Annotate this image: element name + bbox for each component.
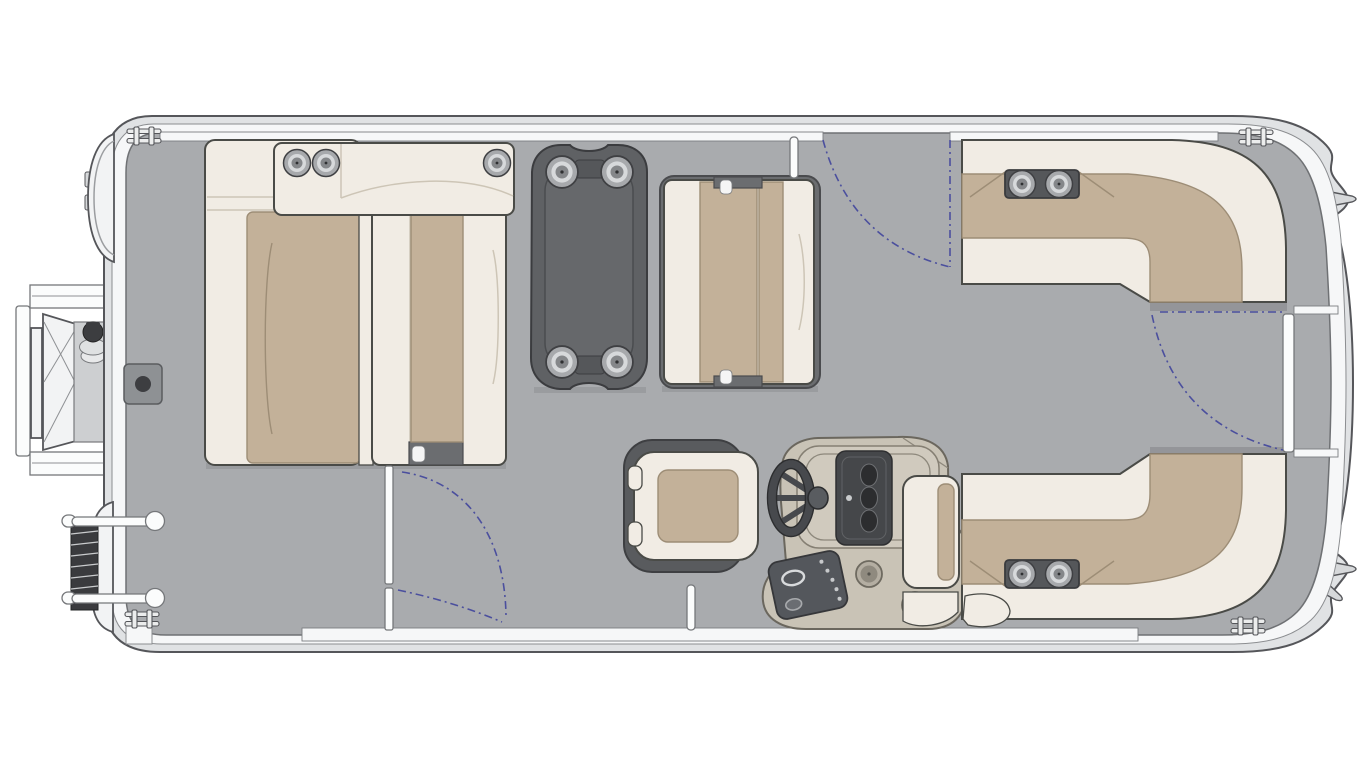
- outboard-motor: [85, 134, 114, 262]
- bow-corner-lounge-top: [962, 140, 1286, 302]
- side-gate-partition: [385, 466, 393, 584]
- forward-bench: [372, 188, 506, 465]
- cupholder-icon: [1009, 171, 1036, 198]
- companion-seat: [903, 476, 959, 626]
- bottom-rail: [302, 628, 1138, 641]
- chaise-cushion: [247, 212, 361, 463]
- bow-armrest-console: [274, 143, 514, 215]
- bench-cushion: [411, 211, 463, 442]
- instrument-cluster: [836, 451, 892, 545]
- rail-post: [687, 585, 695, 630]
- rail-post: [790, 137, 798, 178]
- wheel-hub-icon: [808, 487, 828, 509]
- seat-divider: [359, 190, 373, 465]
- cupholder-icon: [284, 150, 311, 177]
- cupholder-icon: [601, 156, 633, 188]
- stern-door-open: [16, 285, 114, 475]
- chair-cushion: [658, 470, 738, 542]
- gauge-icon: [861, 464, 878, 486]
- pedestal-table: [531, 145, 647, 389]
- bow-walkway-strip-bottom: [1294, 449, 1338, 457]
- console-cupholder-icon: [856, 561, 882, 587]
- captain-chair: [624, 440, 758, 572]
- cupholder-icon: [546, 156, 578, 188]
- cupholder-icon: [601, 346, 633, 378]
- gauge-icon: [861, 487, 878, 509]
- cupholder-icon: [1046, 171, 1073, 198]
- door-frame-rail: [31, 328, 42, 438]
- cupholder-icon: [1046, 561, 1073, 588]
- cupholder-icon: [546, 346, 578, 378]
- bow-gate-door: [1283, 314, 1294, 452]
- cupholder-icon: [313, 150, 340, 177]
- cupholder-icon: [1009, 561, 1036, 588]
- floor-plan-stage: [0, 0, 1366, 768]
- pontoon-floor-plan: [0, 0, 1366, 768]
- bow-corner-lounge-bottom: [962, 454, 1286, 627]
- deck-receptacle: [124, 364, 162, 404]
- mid-bench: [660, 176, 820, 388]
- side-gate-door: [385, 588, 393, 630]
- cupholder-icon: [484, 150, 511, 177]
- door-latch-knob: [80, 322, 107, 363]
- armrest: [628, 466, 642, 490]
- bench-cushion: [700, 182, 757, 382]
- bow-walkway-strip-top: [1294, 306, 1338, 314]
- gauge-icon: [861, 510, 878, 532]
- armrest: [628, 522, 642, 546]
